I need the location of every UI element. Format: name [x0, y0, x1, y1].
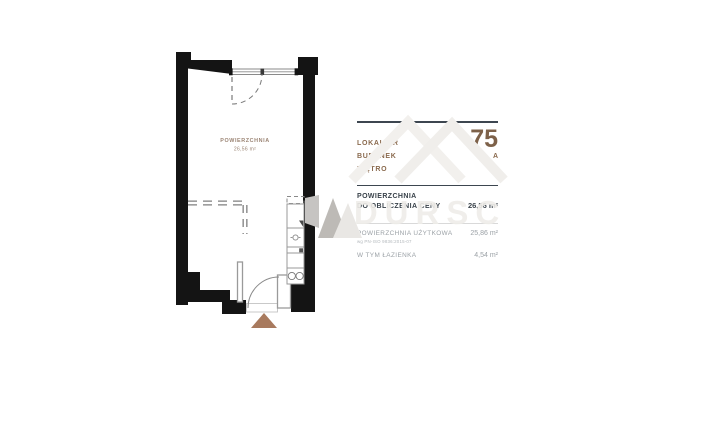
wall-top-right	[298, 57, 318, 75]
sink-mark	[299, 248, 303, 252]
lokal-number: 75	[470, 128, 498, 150]
hob-burner-icon	[288, 272, 295, 279]
room-area: 26,56 m²	[234, 147, 256, 153]
balcony-door-swing-arc	[232, 74, 262, 104]
pietro-row: PIĘTRO 3	[357, 163, 498, 176]
floorplan-drawing: POWIERZCHNIA 26,56 m²	[0, 0, 710, 424]
kitchen-overhead-cabinet	[287, 197, 304, 204]
entrance-door	[247, 275, 291, 312]
usable-area-note: wg PN-ISO 9836:2015-07	[357, 239, 453, 244]
wall-right	[303, 74, 315, 286]
window-endcap-right	[295, 68, 299, 75]
lokal-label: LOKAL NR	[357, 140, 399, 147]
wall-bottom-left-upper	[176, 290, 230, 302]
budynek-value: A	[493, 153, 498, 160]
bathroom-value: 4,54 m²	[474, 252, 498, 259]
room-label: POWIERZCHNIA	[220, 138, 269, 144]
pietro-value: 3	[494, 166, 498, 173]
floorplan-card: POWIERZCHNIA 26,56 m² LOKAL NR 75 BUDYNE…	[0, 0, 710, 424]
bathroom-label: W TYM ŁAZIENKA	[357, 252, 416, 259]
bathroom-partition	[238, 262, 243, 302]
usable-area-row: POWIERZCHNIA UŻYTKOWA wg PN-ISO 9836:201…	[357, 224, 498, 244]
pietro-label: PIĘTRO	[357, 166, 387, 173]
wall-left	[176, 60, 188, 305]
usable-area-label-group: POWIERZCHNIA UŻYTKOWA wg PN-ISO 9836:201…	[357, 230, 453, 244]
entrance-threshold	[247, 304, 278, 313]
wall-bottom-right	[291, 284, 315, 312]
price-area-value: 26,56 m²	[468, 201, 498, 210]
unit-info-panel: LOKAL NR 75 BUDYNEK A PIĘTRO 3 POWIERZCH…	[357, 121, 498, 259]
hob-burner-icon	[296, 272, 303, 279]
price-area-row: POWIERZCHNIA DO OBLICZENIA CENY 26,56 m²	[357, 186, 498, 217]
price-area-label: POWIERZCHNIA DO OBLICZENIA CENY	[357, 192, 441, 211]
window-assembly	[229, 68, 298, 104]
wall-top-protrusion	[176, 52, 191, 61]
entrance-triangle-icon	[251, 313, 277, 328]
window-endcap-left	[229, 68, 233, 75]
planned-partition-dashed	[188, 203, 247, 234]
ventilation-shaft	[305, 195, 319, 228]
lokal-row: LOKAL NR 75	[357, 126, 498, 150]
budynek-label: BUDYNEK	[357, 153, 397, 160]
bathroom-row: W TYM ŁAZIENKA 4,54 m²	[357, 252, 498, 259]
kitchen-counter	[287, 204, 304, 284]
usable-area-value: 25,86 m²	[470, 230, 498, 237]
kitchen-annex	[287, 197, 304, 285]
usable-area-label: POWIERZCHNIA UŻYTKOWA	[357, 230, 453, 237]
